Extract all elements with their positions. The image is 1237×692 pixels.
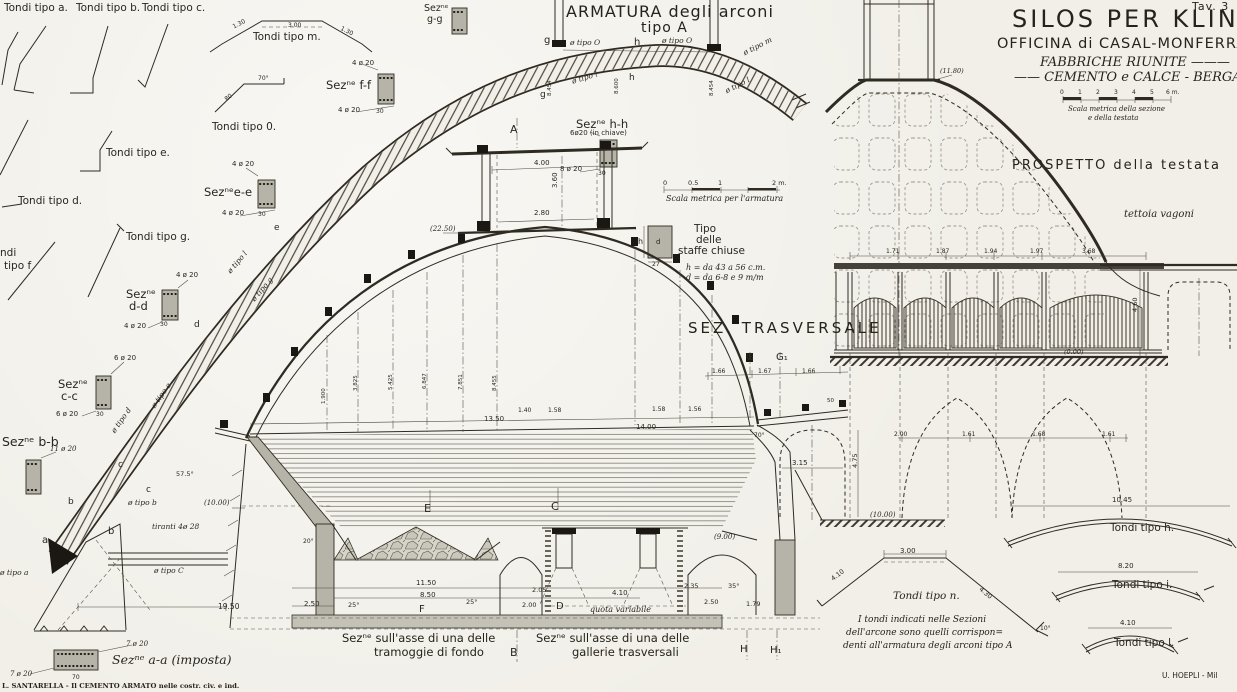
dimension-label: 7 ø 20: [10, 671, 32, 678]
caption-gallerie: gallerie trasversali: [572, 647, 679, 659]
dimension-label: 1.40: [518, 408, 531, 414]
dimension-label: b: [108, 527, 114, 537]
imprint-hoepli: U. HOEPLI - Mil: [1162, 672, 1218, 680]
dimension-label: 4.75: [852, 454, 859, 468]
label-sez-a-a: Sezⁿᵉ a-a (imposta): [112, 654, 232, 667]
heading-sez-trasversale: SEZ. TRASVERSALE: [688, 321, 882, 336]
dimension-label: h: [638, 238, 643, 246]
dimension-label: c: [146, 486, 151, 495]
dimension-label: 1.71: [886, 249, 899, 255]
dimension-label: 2: [1096, 90, 1100, 96]
sheet-title: SILOS PER KLINKER: [1012, 7, 1237, 31]
dimension-label: 8.20: [1118, 563, 1134, 570]
dome-rib-blocks: [263, 234, 753, 402]
dimension-label: 4 ø 20: [222, 210, 244, 217]
dimension-label: 30: [96, 412, 104, 418]
sheet-subtitle-2: FABBRICHE RIUNITE ———: [1040, 56, 1230, 69]
dimension-label: h = da 43 a 56 c.m.: [686, 264, 765, 272]
dimension-label: 1.87: [936, 249, 949, 255]
dimension-label: 13.50: [484, 416, 504, 423]
dimension-label: ø tipo C: [154, 567, 184, 575]
dimension-label: 0.5: [688, 180, 698, 187]
label-tondi-tipo-a: Tondi tipo a.: [4, 3, 68, 14]
dimension-label: 6 ø 20: [56, 411, 78, 418]
marker-G: G: [746, 353, 754, 363]
dimension-label: ø tipo O: [662, 37, 692, 45]
dimension-label: 30: [160, 322, 168, 328]
sheet-subtitle: OFFICINA di CASAL-MONFERRATO: [997, 37, 1237, 52]
dimension-label: 50: [827, 399, 834, 405]
dimension-label: 2.50: [704, 599, 718, 606]
dimension-label: 7 ø 20: [126, 641, 148, 648]
dimension-label: d = da 6-8 e 9 m/m: [686, 274, 764, 282]
dimension-label: 4.10: [612, 590, 628, 597]
dimension-label: 1.97: [1030, 249, 1043, 255]
dimension-label: d: [194, 321, 200, 330]
dimension-label: 1.61: [962, 432, 975, 438]
caption-tramoggie: Sezⁿᵉ sull'asse di una delle: [342, 633, 495, 645]
dimension-label: 4 ø 20: [232, 161, 254, 168]
dimension-label: 19.50: [218, 603, 239, 611]
dimension-label: 3.15: [792, 460, 808, 467]
dimension-label: tiranti 4ø 28: [152, 523, 199, 531]
dimension-label: 6.847: [423, 373, 429, 389]
marker-E: E: [424, 503, 431, 514]
label-tondi-tipo-e: Tondi tipo e.: [106, 148, 170, 159]
dimension-label: h: [629, 74, 635, 83]
heading-armatura-tipo: tipo A: [641, 21, 688, 35]
dimension-label: 2.35: [684, 583, 698, 590]
dimension-label: 3.60: [552, 172, 559, 188]
dimension-label: 11.50: [416, 580, 436, 587]
dimension-label: ø tipo O: [570, 39, 600, 47]
dimension-label: (22.50): [430, 226, 456, 233]
dimension-label: 4 ø 20: [338, 107, 360, 114]
dimension-label: 6 m.: [1166, 90, 1179, 96]
dimension-label: 0: [663, 180, 667, 187]
dimension-label: 70°: [258, 76, 269, 82]
dimension-label: g: [540, 91, 546, 100]
label-tondi-tipo-c: Tondi tipo c.: [142, 3, 205, 14]
dimension-label: 1.67: [758, 369, 771, 375]
note-tondi: I tondi indicati nelle Sezioni: [858, 616, 986, 625]
dimension-label: 4.10: [1120, 620, 1136, 627]
dimension-label: c: [118, 461, 123, 470]
dimension-label: 70°: [754, 433, 765, 439]
dimension-label: 57.5°: [176, 471, 194, 478]
dimension-label: g: [544, 36, 550, 46]
dimension-label: 8.50: [420, 592, 436, 599]
label-tondi-tipo-f: tipo f: [4, 261, 31, 272]
label-staffe: Tipo: [694, 224, 716, 235]
label-staffe: delle: [696, 235, 721, 246]
label-tettoia-vagoni: tettoia vagoni: [1124, 210, 1194, 220]
dimension-label: 10°: [1040, 626, 1051, 632]
dimension-label: 3.825: [354, 375, 360, 391]
label-sez-d-d: d-d: [129, 301, 148, 313]
label-sez-f-f: Sezⁿᵉ f-f: [326, 80, 371, 92]
marker-F: F: [419, 605, 425, 615]
dimension-label: 4: [1132, 90, 1136, 96]
dimension-label: 35°: [728, 583, 740, 590]
dimension-label: 1.79: [746, 601, 760, 608]
dimension-label: 2.50: [304, 601, 320, 608]
dimension-label: 1: [1078, 90, 1082, 96]
dimension-label: 6ø20 (in chiave): [570, 130, 627, 137]
dimension-label: 8.454: [710, 80, 716, 96]
dimension-label: 6 ø 20: [114, 355, 136, 362]
label-tondi-tipo-i: Tondi tipo i.: [1112, 580, 1172, 591]
label-tondi-tipo-l: Tondi tipo l.: [1114, 638, 1174, 649]
marker-D: D: [556, 602, 564, 612]
dimension-label: 8.600: [615, 78, 621, 94]
dimension-label: a: [42, 536, 48, 546]
dimension-label: d: [656, 239, 660, 246]
dimension-label: 4.00: [534, 160, 550, 167]
marker-C: C: [551, 501, 559, 512]
dimension-label: 1: [718, 180, 722, 187]
dimension-label: 1.61: [1102, 432, 1115, 438]
caption-scala-sezione: Scala metrica della sezione: [1068, 106, 1165, 113]
drawing-sheet: Tav. 3 SILOS PER KLINKER OFFICINA di CAS…: [0, 0, 1237, 692]
dimension-label: 27: [652, 262, 660, 268]
dimension-label: 1.68: [1032, 432, 1045, 438]
dimension-label: (9.00): [714, 534, 735, 541]
dimension-label: b: [68, 498, 74, 507]
dimension-label: 1.66: [802, 369, 815, 375]
dimension-label: 11 ø 20: [50, 446, 76, 453]
dimension-label: (10.00): [870, 512, 896, 519]
dimension-label: (11.80): [940, 68, 964, 75]
dimension-label: 2.00: [522, 602, 536, 609]
dimension-label: 14.00: [636, 424, 656, 431]
label-sez-g-g: g-g: [427, 15, 443, 25]
dimension-label: 2.80: [534, 210, 550, 217]
dimension-label: ø tipo b: [128, 499, 157, 507]
dimension-label: 1.58: [652, 407, 665, 413]
dimension-label: 2.00: [894, 432, 907, 438]
caption-gallerie: Sezⁿᵉ sull'asse di una delle: [536, 633, 689, 645]
dimension-label: 1.66: [712, 369, 725, 375]
label-tondi-tipo-b: Tondi tipo b.: [76, 3, 140, 14]
note-tondi: dell'arcone sono quelli corrispon=: [846, 629, 1003, 638]
label-tondi-tipo-h: Tondi tipo h.: [1110, 523, 1174, 534]
caption-tramoggie: tramoggie di fondo: [374, 647, 484, 659]
marker-H1: H₁: [770, 646, 782, 656]
dimension-label: 0: [1060, 90, 1064, 96]
label-staffe: staffe chiuse: [678, 246, 745, 257]
dimension-label: 1.900: [322, 388, 328, 404]
dimension-label: 8 ø 20: [560, 166, 582, 173]
dimension-label: 4.60: [1132, 298, 1139, 312]
label-tondi-tipo-d: Tondi tipo d.: [18, 196, 82, 207]
heading-armatura: ARMATURA degli arconi: [566, 4, 774, 20]
dimension-label: quota variabile: [590, 606, 651, 614]
label-tondi-tipo-m: Tondi tipo m.: [253, 32, 321, 43]
dimension-label: 30: [376, 109, 384, 115]
dimension-label: 1.94: [984, 249, 997, 255]
dimension-label: 3.00: [900, 548, 916, 555]
note-tondi: denti all'armatura degli arconi tipo A: [843, 642, 1013, 651]
dimension-label: 30: [258, 212, 266, 218]
dimension-label: e: [274, 224, 280, 233]
tondi-bar-diagrams: [0, 21, 372, 300]
dimension-label: 5.425: [389, 374, 395, 390]
dimension-label: 7.851: [459, 374, 465, 390]
caption-scala-armatura: Scala metrica per l'armatura: [666, 195, 783, 203]
dimension-label: 25°: [466, 599, 478, 606]
label-sez-e-e: Sezⁿᵉe-e: [204, 187, 252, 199]
dimension-label: 70: [72, 675, 80, 681]
label-tondi-tipo-g: Tondi tipo g.: [126, 232, 190, 243]
dimension-label: 8.455: [493, 375, 499, 391]
dimension-label: (10.00): [204, 500, 230, 507]
dimension-label: 5: [1150, 90, 1154, 96]
label-sez-g-g: Sezⁿᵉ: [424, 4, 449, 14]
dimension-label: 3: [1114, 90, 1118, 96]
label-tondi-tipo-f: ndi: [0, 248, 16, 259]
dimension-label: ø tipo a: [0, 569, 28, 577]
dimension-label: (0.00): [1064, 349, 1084, 356]
dimension-label: 2 m.: [772, 180, 787, 187]
label-tondi-tipo-0: Tondi tipo 0.: [212, 122, 276, 133]
dimension-label: 2.05: [532, 587, 546, 594]
marker-H: H: [740, 645, 748, 655]
dimension-label: 20°: [303, 539, 314, 545]
marker-A: A: [510, 124, 518, 135]
dimension-label: 10.45: [1112, 497, 1132, 504]
dimension-label: 8.454: [548, 80, 554, 96]
marker-B: B: [510, 647, 518, 658]
dimension-label: h: [634, 38, 640, 48]
dimension-label: 4 ø 20: [352, 60, 374, 67]
heading-prospetto: PROSPETTO della testata: [1012, 159, 1221, 172]
marker-G1: G₁: [776, 353, 788, 363]
dimension-label: 1.58: [548, 408, 561, 414]
dimension-label: 4 ø 20: [176, 272, 198, 279]
dimension-label: 30: [598, 171, 606, 177]
dimension-label: 1.56: [688, 407, 701, 413]
label-sez-c-c: c-c: [61, 391, 78, 403]
dimension-label: 3.68: [1082, 249, 1095, 255]
dimension-label: 4 ø 20: [124, 323, 146, 330]
caption-scala-sezione: e della testata: [1088, 115, 1138, 122]
imprint-santarella: L. SANTARELLA - Il CEMENTO ARMATO nelle …: [2, 683, 239, 690]
label-tondi-tipo-n: Tondi tipo n.: [893, 591, 960, 602]
dimension-label: 25°: [348, 602, 360, 609]
dimension-label: 3.00: [288, 23, 301, 29]
sheet-subtitle-3: —— CEMENTO e CALCE - BERGAMO: [1014, 71, 1237, 84]
